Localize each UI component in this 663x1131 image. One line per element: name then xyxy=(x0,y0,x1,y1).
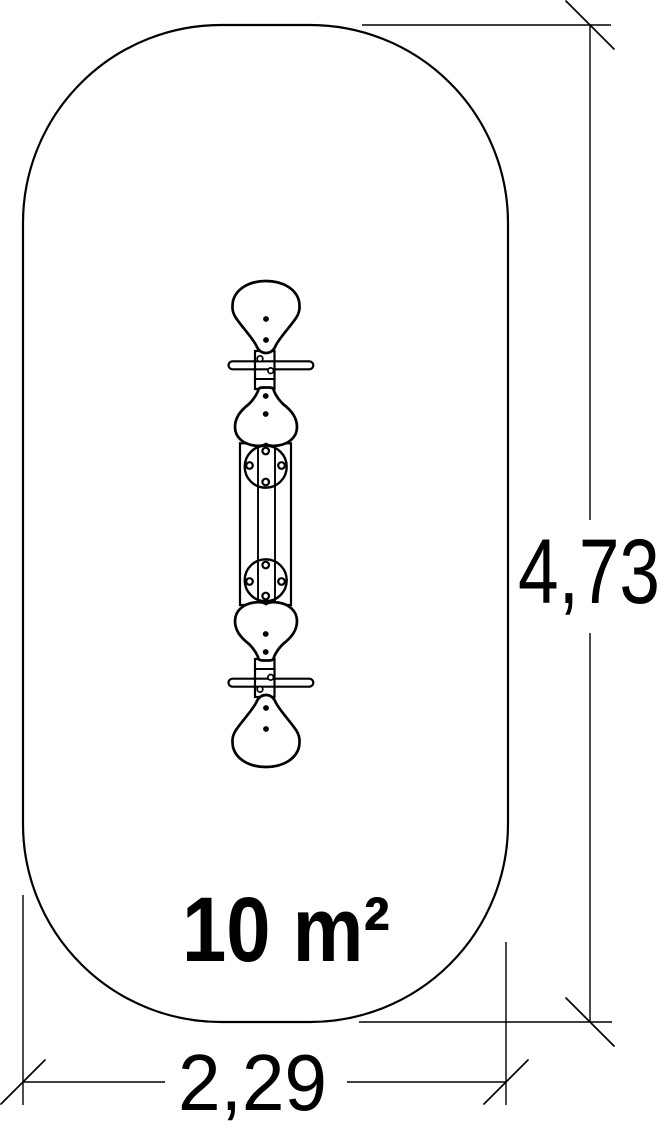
bolt-dot xyxy=(263,393,269,399)
drawing-canvas: 4,73 2,29 10 m² xyxy=(0,0,663,1131)
rider-station-bottom xyxy=(229,602,314,767)
bolt-dot xyxy=(263,316,269,322)
area-label: 10 m² xyxy=(182,879,390,981)
bolt-dot xyxy=(263,411,269,417)
bolt-marker xyxy=(278,578,285,585)
bolt-marker xyxy=(262,562,269,569)
plan-drawing: 4,73 2,29 10 m² xyxy=(0,0,663,1131)
bolt-marker xyxy=(257,356,263,362)
bolt-marker xyxy=(262,593,269,600)
rider-station-top xyxy=(229,281,314,446)
bolt-marker xyxy=(246,462,253,469)
bolt-marker xyxy=(268,368,274,374)
bolt-dot xyxy=(263,337,269,343)
bolt-marker xyxy=(246,578,253,585)
bolt-marker xyxy=(278,462,285,469)
spring-frame xyxy=(240,443,291,605)
spring-seesaw-plan xyxy=(229,281,314,767)
bolt-marker xyxy=(262,448,269,455)
bolt-marker xyxy=(262,479,269,486)
width-dimension-label: 2,29 xyxy=(178,1038,327,1127)
height-dimension: 4,73 xyxy=(359,1,660,1046)
height-dimension-label: 4,73 xyxy=(518,521,660,623)
